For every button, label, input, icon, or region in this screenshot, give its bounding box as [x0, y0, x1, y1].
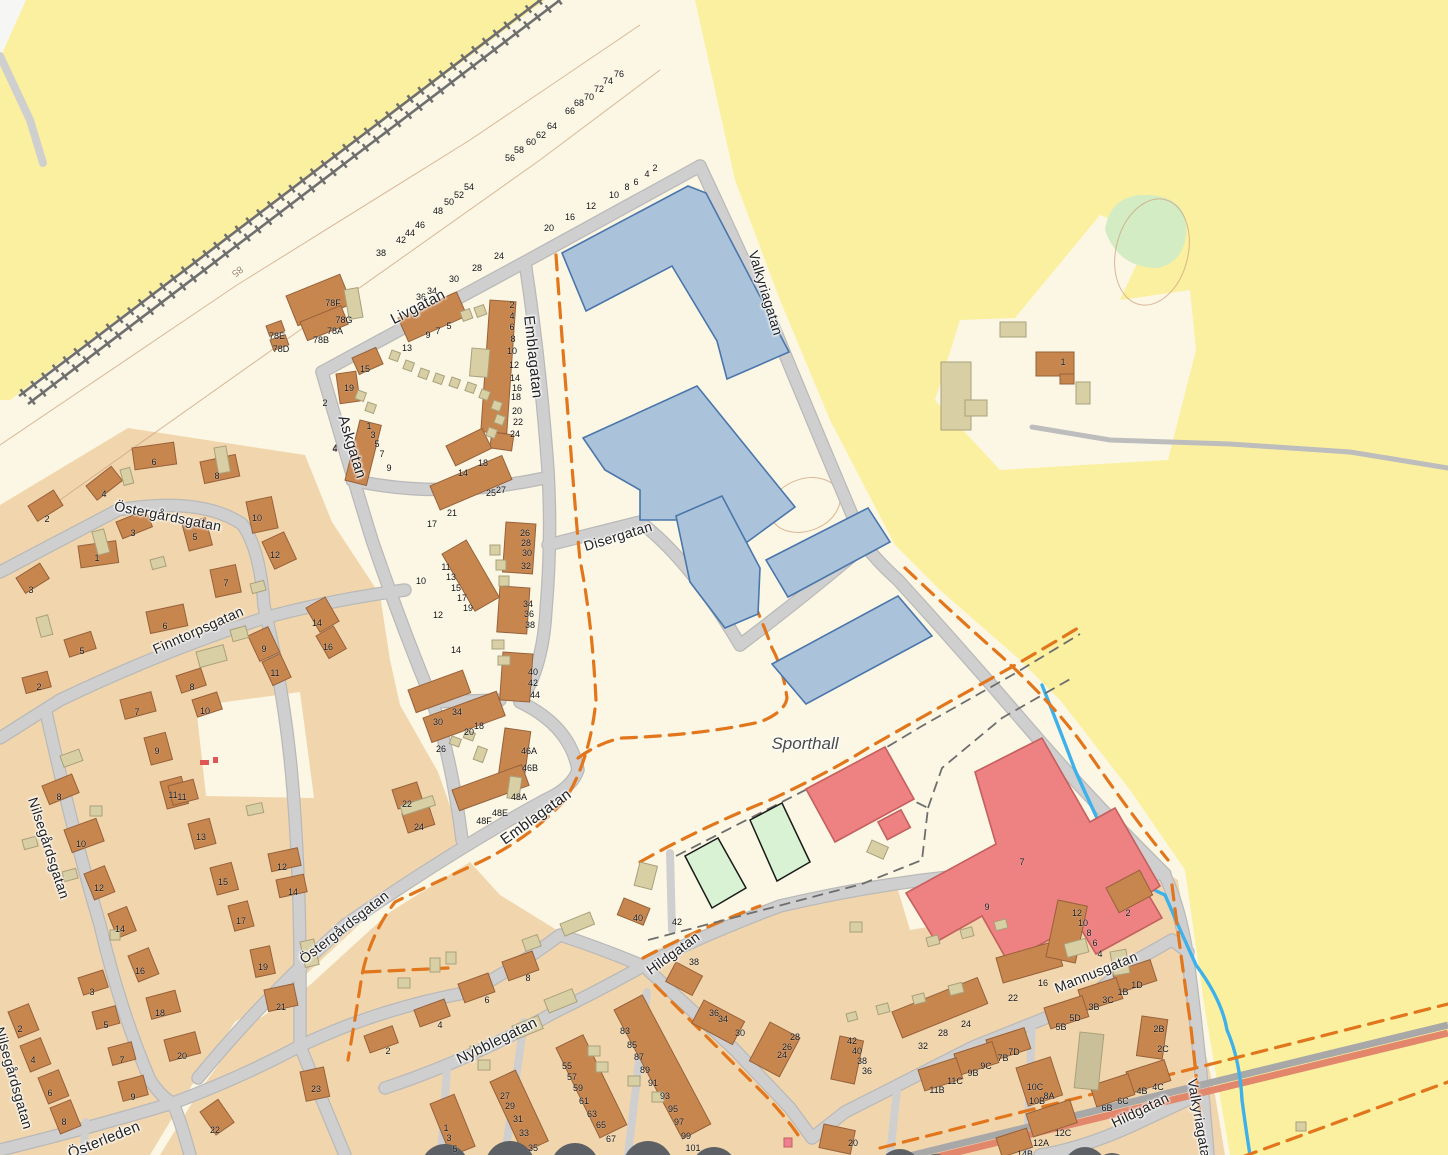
red-mark: [784, 1138, 792, 1147]
red-mark: [200, 760, 209, 765]
map-base-layer: [0, 0, 1448, 1155]
red-mark: [213, 757, 218, 763]
map-canvas[interactable]: 2468101216202428303436384244464850525456…: [0, 0, 1448, 1155]
